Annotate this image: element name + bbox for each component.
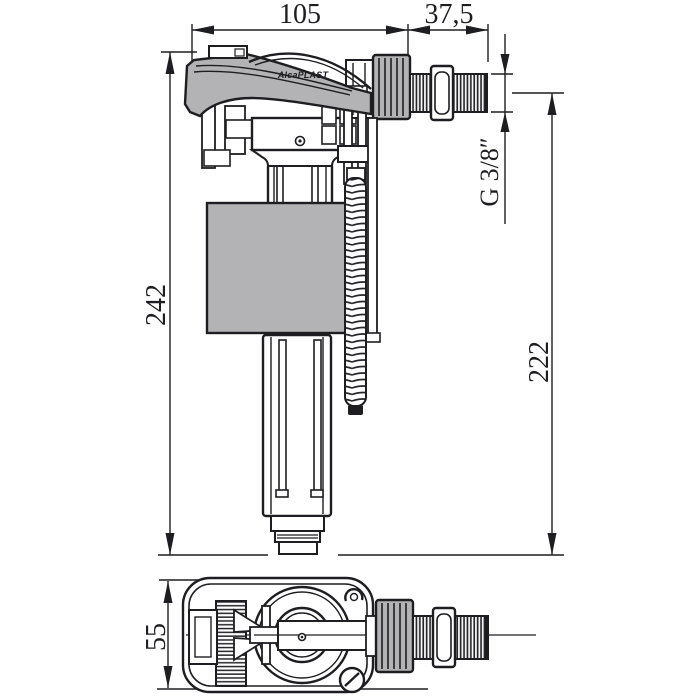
- rod-foot: [276, 490, 288, 497]
- threaded-shank: [453, 74, 487, 112]
- dimension-55-label: 55: [141, 623, 172, 651]
- bottom-view: [183, 578, 536, 692]
- adjusting-rod: [279, 340, 286, 492]
- arrowhead-icon: [166, 52, 175, 74]
- arrowhead-icon: [548, 533, 557, 555]
- float: [207, 203, 350, 333]
- supply-hose: [345, 178, 366, 406]
- lever-fork-foot: [204, 150, 230, 166]
- tube-step: [271, 516, 324, 531]
- tube-step: [275, 531, 320, 542]
- arrowhead-icon: [192, 26, 214, 35]
- dimension-37-5-label: 37,5: [425, 0, 474, 30]
- lever-arm: [185, 54, 371, 116]
- side-view: AlcaPLAST: [185, 46, 487, 554]
- arrowhead-icon: [166, 533, 175, 555]
- dimension-222-label: 222: [524, 341, 555, 383]
- arrowhead-icon: [386, 26, 408, 35]
- float-guide-rail: [368, 118, 377, 338]
- arrowhead-icon: [164, 581, 173, 603]
- arrowhead-icon: [501, 54, 510, 74]
- thread-size-label: G 3/8″: [475, 137, 504, 206]
- tube-step: [279, 542, 317, 554]
- technical-drawing-page: AlcaPLAST: [0, 0, 700, 700]
- adjusting-rod: [314, 340, 321, 492]
- dimension-242-label: 242: [141, 284, 172, 326]
- head-pivot-dot: [298, 139, 301, 142]
- rod-foot: [311, 490, 323, 497]
- head-shoulder: [252, 150, 346, 166]
- threaded-shank-bottom: [413, 616, 433, 659]
- arrowhead-icon: [164, 666, 173, 688]
- arrowhead-icon: [501, 112, 510, 132]
- threaded-shank: [410, 74, 433, 112]
- valve-seat-detail: [322, 126, 336, 144]
- left-bracket: [189, 610, 217, 664]
- threaded-shank-bottom: [455, 616, 488, 659]
- fill-valve-drawing: AlcaPLAST: [0, 0, 700, 700]
- arrowhead-icon: [548, 93, 557, 115]
- brand-label: AlcaPLAST: [277, 70, 330, 80]
- hose-tip: [348, 405, 363, 415]
- float-rod: [277, 166, 283, 204]
- float-rod: [312, 166, 318, 204]
- center-pin-dot: [301, 636, 304, 639]
- dimension-105-label: 105: [279, 0, 321, 30]
- head-bracket: [226, 120, 252, 138]
